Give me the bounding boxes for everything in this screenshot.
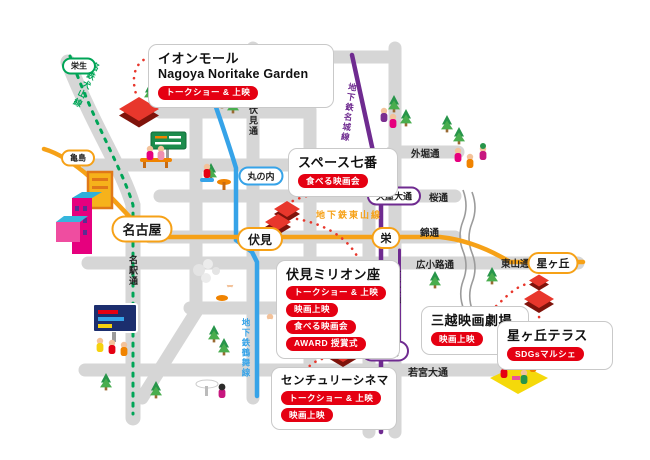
venue-title: 伏見ミリオン座	[286, 267, 390, 283]
venue-title: スペース七番	[298, 155, 388, 171]
venue-card-fushimi-million-za[interactable]: 伏見ミリオン座 トークショー & 上映 映画上映 食べる映画会 AWARD 授賞…	[276, 260, 400, 359]
line-label-tsurumai: 地下鉄鶴舞線	[240, 318, 252, 378]
venue-title: センチュリーシネマ	[281, 374, 387, 388]
event-tag: 映画上映	[281, 408, 333, 422]
venue-subtitle: Nagoya Noritake Garden	[158, 67, 324, 82]
road-label-higashiyamadori: 東山通	[501, 256, 530, 270]
road-label-fushimidori: 伏見通	[247, 105, 260, 137]
station-sakae[interactable]: 栄	[372, 227, 401, 249]
marker-hoshigaoka-large[interactable]	[524, 290, 554, 313]
road-label-meiekidori: 名駅通	[127, 255, 140, 287]
station-sako[interactable]: 栄生	[62, 58, 96, 75]
event-tag: AWARD 授賞式	[286, 337, 366, 351]
event-tag: 映画上映	[286, 303, 338, 317]
road-label-wakamiyaodori: 若宮大通	[408, 364, 448, 379]
station-hoshigaoka[interactable]: 星ヶ丘	[528, 252, 579, 274]
table-lady-illustration	[196, 380, 225, 398]
venue-card-hoshigaoka-terrace[interactable]: 星ヶ丘テラス SDGsマルシェ	[497, 321, 613, 370]
river	[460, 190, 475, 312]
illustrated-event-map: 伏見通 名駅通 外堀通 桜通 錦通 広小路通 東山通 大津通 久屋大通 若宮大通…	[0, 0, 650, 460]
station-nagoya[interactable]: 名古屋	[111, 216, 172, 243]
road-label-sakuradori: 桜通	[429, 190, 448, 204]
event-tag: 食べる映画会	[298, 174, 368, 188]
green-road-sign	[151, 132, 186, 160]
station-marunouchi[interactable]: 丸の内	[238, 167, 283, 186]
line-label-higashiyama: 地下鉄東山線	[316, 208, 382, 221]
event-tag: トークショー & 上映	[281, 391, 381, 405]
road-label-hirokojidori: 広小路通	[416, 257, 454, 271]
station-kamejima[interactable]: 亀島	[61, 150, 95, 167]
road-label-sotoboridori: 外堀通	[411, 146, 440, 160]
road-label-nishikidori: 錦通	[420, 225, 439, 239]
event-tag: 映画上映	[431, 332, 483, 346]
venue-title: イオンモール	[158, 51, 324, 67]
venue-card-space-nanaban[interactable]: スペース七番 食べる映画会	[288, 148, 398, 197]
venue-card-aeon-mall[interactable]: イオンモール Nagoya Noritake Garden トークショー & 上…	[148, 44, 334, 108]
event-tag: トークショー & 上映	[286, 286, 386, 300]
station-fushimi[interactable]: 伏見	[237, 227, 283, 251]
event-tag: SDGsマルシェ	[507, 347, 584, 361]
street-person-illustration	[267, 314, 274, 328]
venue-card-century-cinema[interactable]: センチュリーシネマ トークショー & 上映 映画上映	[271, 367, 397, 430]
event-tag: トークショー & 上映	[158, 86, 258, 100]
event-tag: 食べる映画会	[286, 320, 356, 334]
marker-hoshigaoka-small[interactable]	[529, 275, 549, 291]
buildings-illustration	[56, 172, 112, 254]
venue-title: 星ヶ丘テラス	[507, 328, 603, 344]
